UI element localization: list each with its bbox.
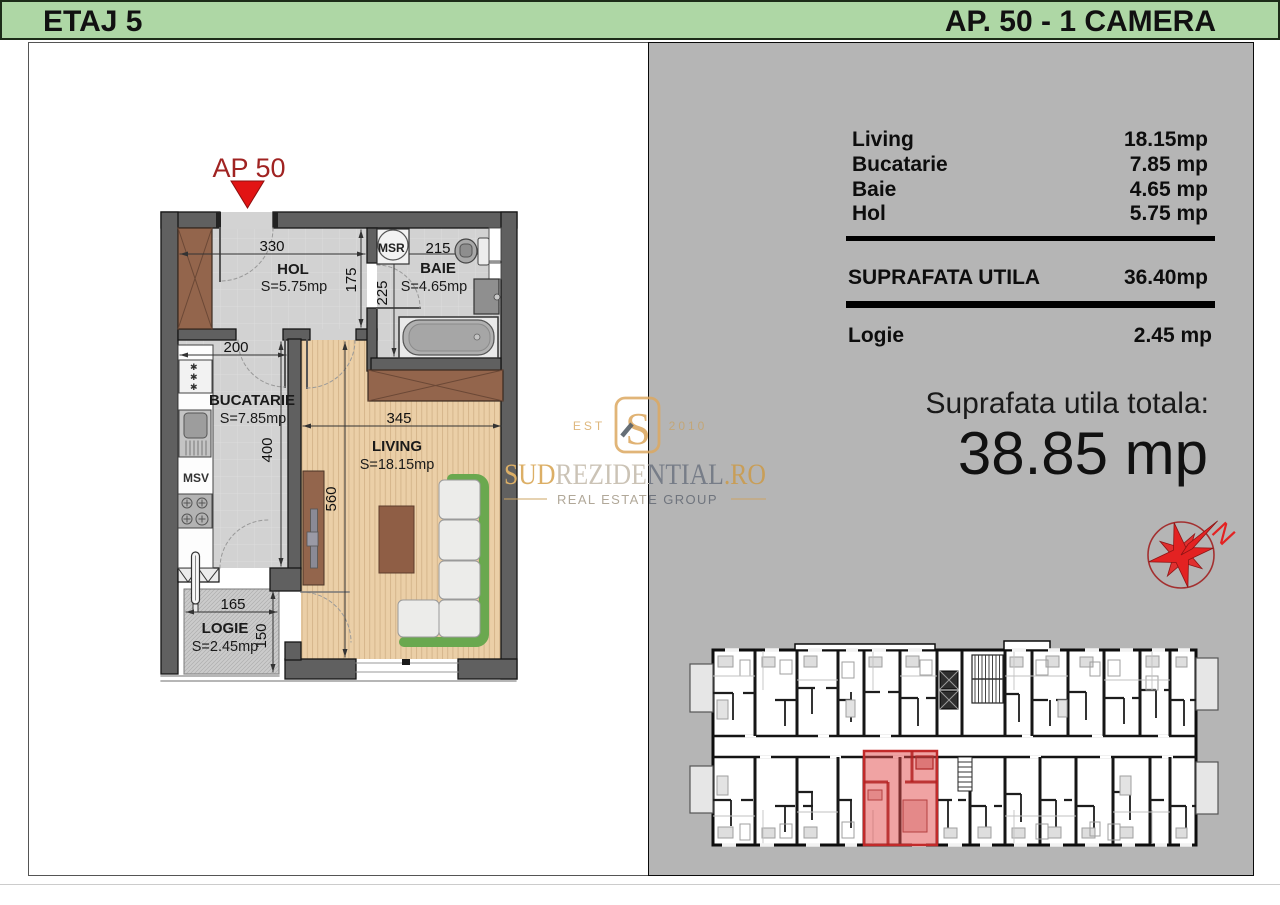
svg-text:HOL: HOL bbox=[277, 261, 309, 278]
svg-text:S=18.15mp: S=18.15mp bbox=[360, 457, 435, 473]
svg-text:225: 225 bbox=[374, 280, 391, 305]
svg-text:345: 345 bbox=[386, 410, 411, 427]
svg-text:LOGIE: LOGIE bbox=[202, 620, 249, 637]
svg-text:MSR: MSR bbox=[378, 241, 405, 255]
svg-text:175: 175 bbox=[343, 267, 360, 292]
svg-text:EST: EST bbox=[573, 419, 605, 433]
svg-text:LIVING: LIVING bbox=[372, 438, 422, 455]
svg-text:BUCATARIE: BUCATARIE bbox=[209, 392, 295, 409]
svg-text:165: 165 bbox=[220, 596, 245, 613]
svg-text:S=4.65mp: S=4.65mp bbox=[401, 279, 468, 295]
svg-text:AP 50: AP 50 bbox=[212, 153, 285, 183]
svg-text:✱: ✱ bbox=[190, 382, 198, 392]
svg-text:S=2.45mp: S=2.45mp bbox=[192, 639, 259, 655]
svg-text:400: 400 bbox=[259, 437, 276, 462]
svg-text:BAIE: BAIE bbox=[420, 260, 456, 277]
svg-text:215: 215 bbox=[425, 240, 450, 257]
svg-text:200: 200 bbox=[223, 339, 248, 356]
svg-text:S=7.85mp: S=7.85mp bbox=[220, 411, 287, 427]
svg-text:S=5.75mp: S=5.75mp bbox=[261, 279, 328, 295]
svg-text:2010: 2010 bbox=[669, 419, 708, 433]
svg-text:560: 560 bbox=[323, 486, 340, 511]
svg-text:✱: ✱ bbox=[190, 362, 198, 372]
svg-text:✱: ✱ bbox=[190, 372, 198, 382]
svg-text:N: N bbox=[1206, 516, 1241, 551]
svg-text:MSV: MSV bbox=[183, 471, 209, 485]
svg-text:330: 330 bbox=[259, 238, 284, 255]
